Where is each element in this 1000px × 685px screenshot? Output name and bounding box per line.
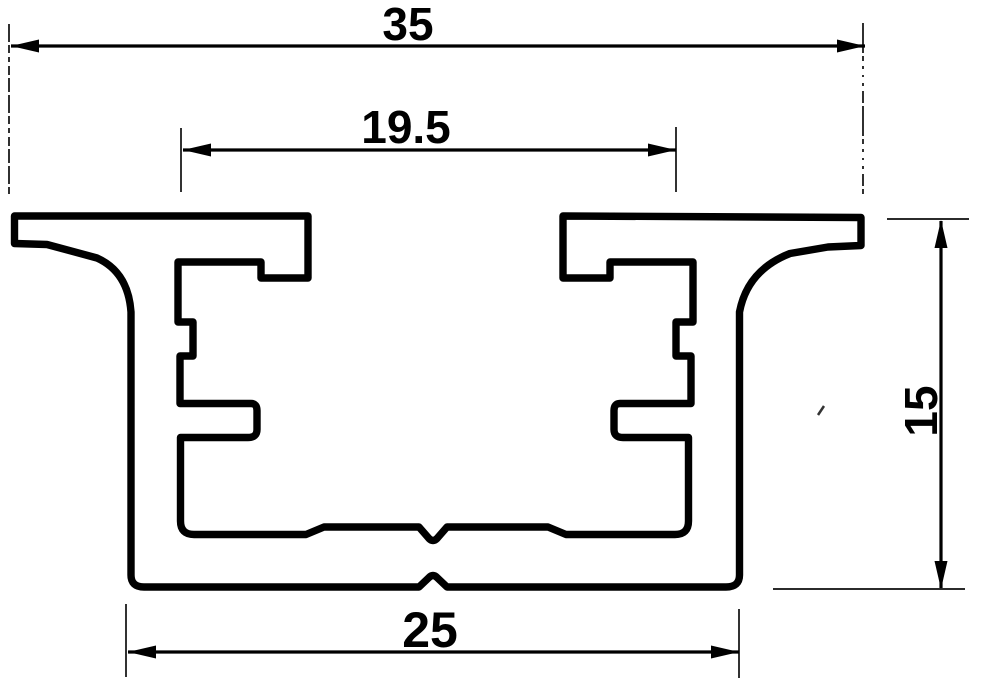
svg-text:35: 35 [382,0,433,50]
svg-text:25: 25 [402,602,458,658]
svg-text:15: 15 [895,385,947,436]
svg-text:19.5: 19.5 [361,101,451,153]
